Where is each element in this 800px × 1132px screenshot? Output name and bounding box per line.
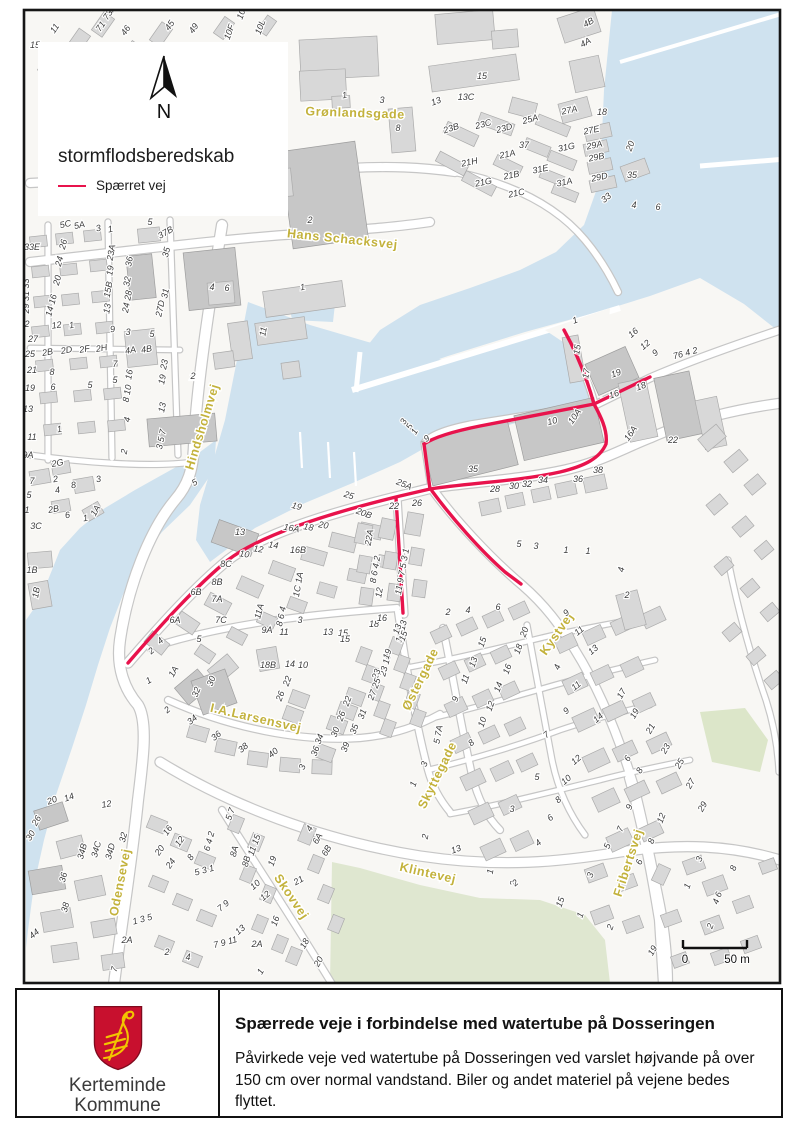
house-number-label: 6 (655, 202, 660, 212)
municipality-logo: Kerteminde Kommune (17, 990, 220, 1116)
house-number-label: 2 (623, 590, 629, 600)
house-number-label: 4A (124, 344, 137, 356)
house-number-label: 10 (298, 660, 308, 670)
house-number-label: 1B (26, 565, 37, 575)
house-number-label: 18 (303, 521, 315, 533)
house-number-label: 13 (235, 527, 245, 537)
house-number-label: 3 (125, 327, 130, 337)
municipality-name: Kerteminde Kommune (69, 1076, 166, 1116)
house-number-label: 37 (519, 140, 530, 150)
house-number-label: 14 (285, 659, 295, 669)
house-number-label: 6 (495, 602, 500, 612)
house-number-label: 14 (268, 539, 279, 550)
legend-panel: N stormflodsberedskab Spærret vej (38, 42, 288, 216)
house-number-label: 13C (458, 92, 475, 102)
house-number-label: 22 (667, 435, 678, 445)
house-number-label: 2 (306, 215, 312, 225)
house-number-label: 26 (411, 498, 422, 508)
house-number-label: 4 (465, 605, 470, 615)
house-number-label: 11 (257, 326, 268, 337)
footer-bar: Kerteminde Kommune Spærrede veje i forbi… (15, 988, 783, 1118)
house-number-label: 2F (77, 343, 91, 355)
house-number-label: 21 (26, 365, 37, 375)
house-number-label: 9A (261, 625, 272, 635)
house-number-label: 8B (211, 577, 222, 587)
map-title: Spærrede veje i forbindelse med watertub… (235, 1014, 765, 1034)
house-number-label: 22 (388, 501, 399, 511)
house-number-label: 12 (51, 319, 62, 330)
house-number-label: 13 (101, 303, 113, 315)
house-number-label: 19 (156, 373, 168, 385)
legend-title: stormflodsberedskab (58, 146, 234, 168)
house-number-label: 4 (185, 952, 190, 962)
house-number-label: 2 (444, 607, 450, 617)
footer-text: Spærrede veje i forbindelse med watertub… (220, 990, 781, 1116)
legend-item-blocked-road: Spærret vej (58, 178, 166, 193)
kerteminde-coat-of-arms-icon (91, 1004, 145, 1072)
house-number-label: 3 (509, 804, 514, 814)
house-number-label: 7C (215, 615, 227, 625)
house-number-label: 3 (379, 95, 384, 105)
house-number-label: 6 (224, 283, 229, 293)
house-number-label: 27 (27, 334, 39, 344)
house-number-label: 6A (169, 615, 180, 625)
page: { "legend": { "title": "stormflodsbereds… (0, 0, 800, 1132)
house-number-label: 13 (156, 401, 168, 413)
house-number-label: 10 (239, 548, 250, 559)
house-number-label: 36 (573, 474, 583, 484)
house-number-label: 16B (290, 545, 306, 555)
house-number-label: 1 (585, 546, 590, 556)
house-number-label: 16 (123, 369, 135, 381)
house-number-label: 36 (123, 256, 135, 268)
house-number-label: 12 (253, 543, 264, 554)
house-number-label: 16 (377, 613, 387, 623)
house-number-label: 15 (340, 634, 351, 644)
house-number-label: 30 (509, 481, 519, 491)
house-number-label: 2A (250, 939, 262, 949)
scale-end-label: 50 m (724, 954, 750, 966)
north-label: N (157, 101, 171, 123)
house-number-label: 35 (468, 464, 479, 474)
house-number-label: 2A (120, 935, 132, 945)
house-number-label: 20 (317, 519, 330, 531)
house-number-label: 1B (30, 586, 42, 599)
house-number-label: 1 (563, 545, 568, 555)
house-number-label: 12 (373, 587, 385, 599)
house-number-label: 12 (101, 798, 113, 810)
house-number-label: 4B (140, 343, 153, 355)
legend-item-label: Spærret vej (96, 178, 166, 193)
house-number-label: 3 (297, 615, 302, 625)
house-number-label: 11 (27, 432, 36, 442)
house-number-label: 32 (121, 276, 133, 288)
house-number-label: 18B (260, 660, 276, 670)
house-number-label: 3 (533, 541, 538, 551)
house-number-label: 35 (627, 170, 638, 180)
north-arrow-icon: N (142, 54, 186, 124)
house-number-label: 19 (104, 265, 116, 277)
house-number-label: 19 (25, 383, 35, 393)
scale-start-label: 0 (682, 954, 688, 966)
house-number-label: 3C (30, 521, 42, 531)
house-number-label: 34 (538, 475, 548, 485)
house-number-label: 6B (190, 587, 201, 597)
house-number-label: 11 (279, 627, 288, 637)
house-number-label: 25 (24, 349, 36, 359)
house-number-label: 2B (46, 503, 60, 515)
house-number-label: 2B (40, 346, 54, 358)
house-number-label: 31 (159, 287, 171, 299)
house-number-label: 29 31 33 (21, 278, 31, 314)
house-number-label: 2 (189, 371, 195, 381)
house-number-label: 8 (49, 367, 54, 377)
house-number-label: 32 (522, 479, 532, 489)
house-number-label: 4 (209, 282, 214, 292)
house-number-label: 8 (395, 123, 400, 133)
house-number-label: 8C (220, 559, 232, 569)
house-number-label: 2 (163, 947, 169, 957)
house-number-label: 4 (631, 200, 636, 210)
house-number-label: 6 (50, 382, 55, 392)
map-description: Påvirkede veje ved watertube på Dosserin… (235, 1048, 765, 1113)
blocked-road-swatch-icon (58, 185, 86, 187)
house-number-label: 18 (597, 107, 607, 117)
house-number-label: 13 (323, 627, 333, 637)
house-number-label: 38 (593, 465, 603, 475)
house-number-label: 15 (477, 71, 488, 81)
house-number-label: 33E (24, 242, 41, 252)
house-number-label: 28 (489, 484, 500, 494)
house-number-label: 7A (211, 594, 222, 604)
